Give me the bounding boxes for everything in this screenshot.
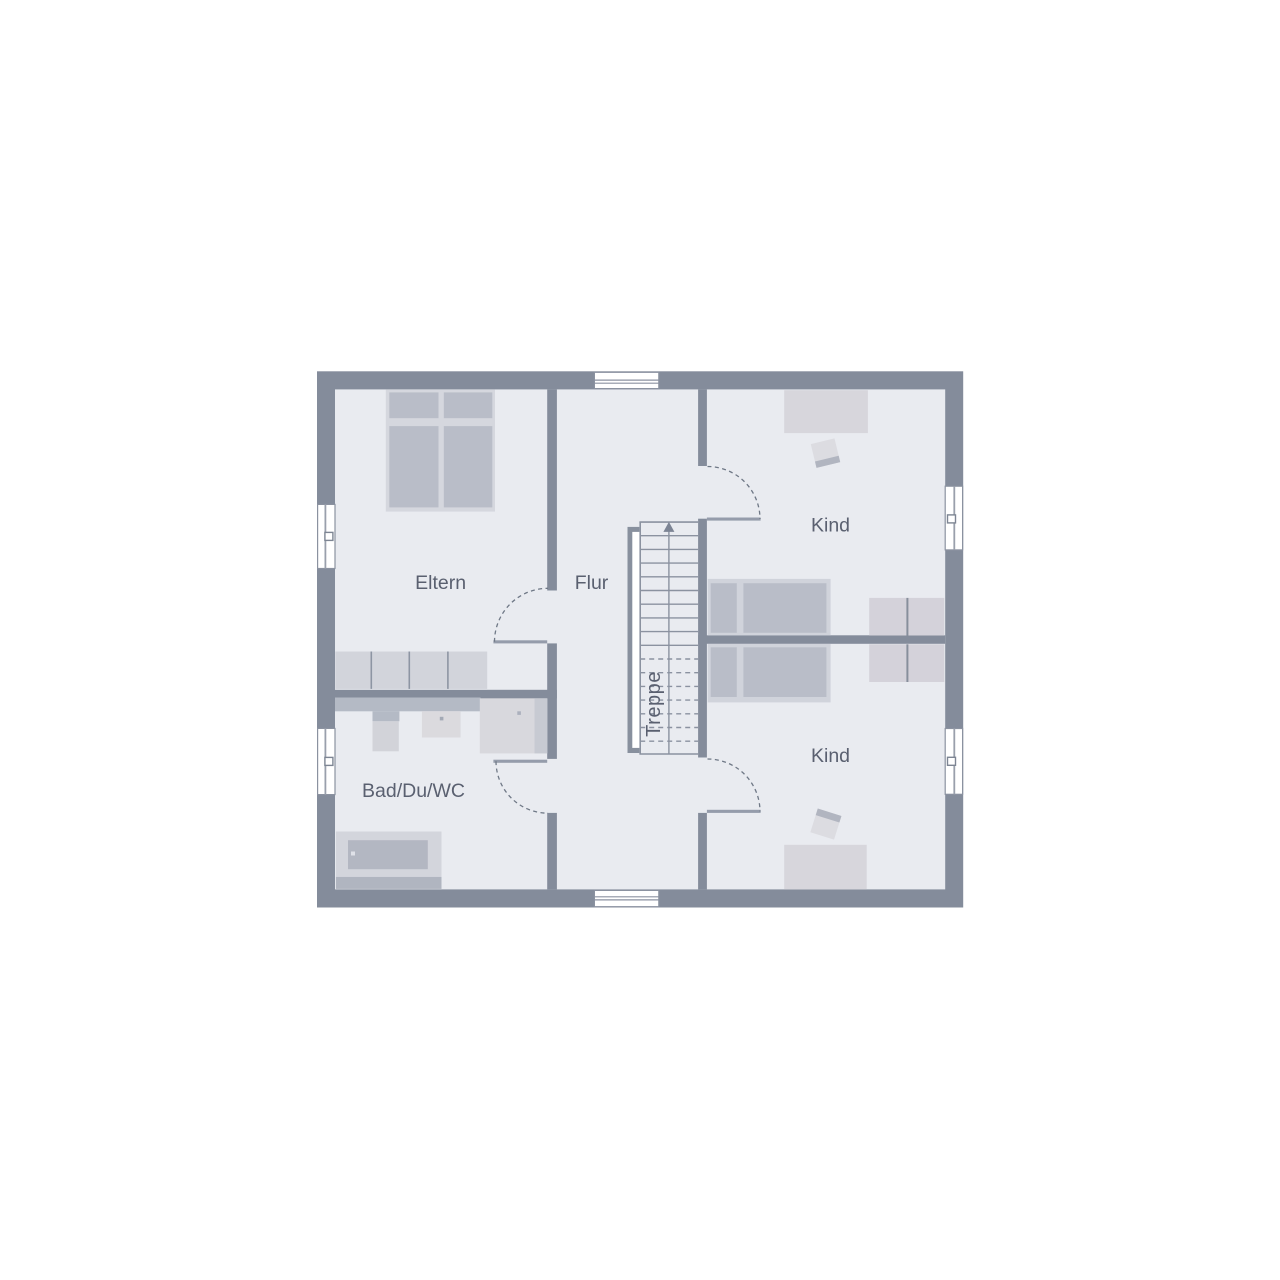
svg-text:Treppe: Treppe <box>643 671 665 737</box>
svg-text:Kind: Kind <box>811 514 850 536</box>
svg-text:Kind: Kind <box>811 745 850 767</box>
svg-text:Eltern: Eltern <box>415 572 466 594</box>
svg-text:Flur: Flur <box>575 572 609 594</box>
svg-text:Bad/Du/WC: Bad/Du/WC <box>362 780 465 802</box>
